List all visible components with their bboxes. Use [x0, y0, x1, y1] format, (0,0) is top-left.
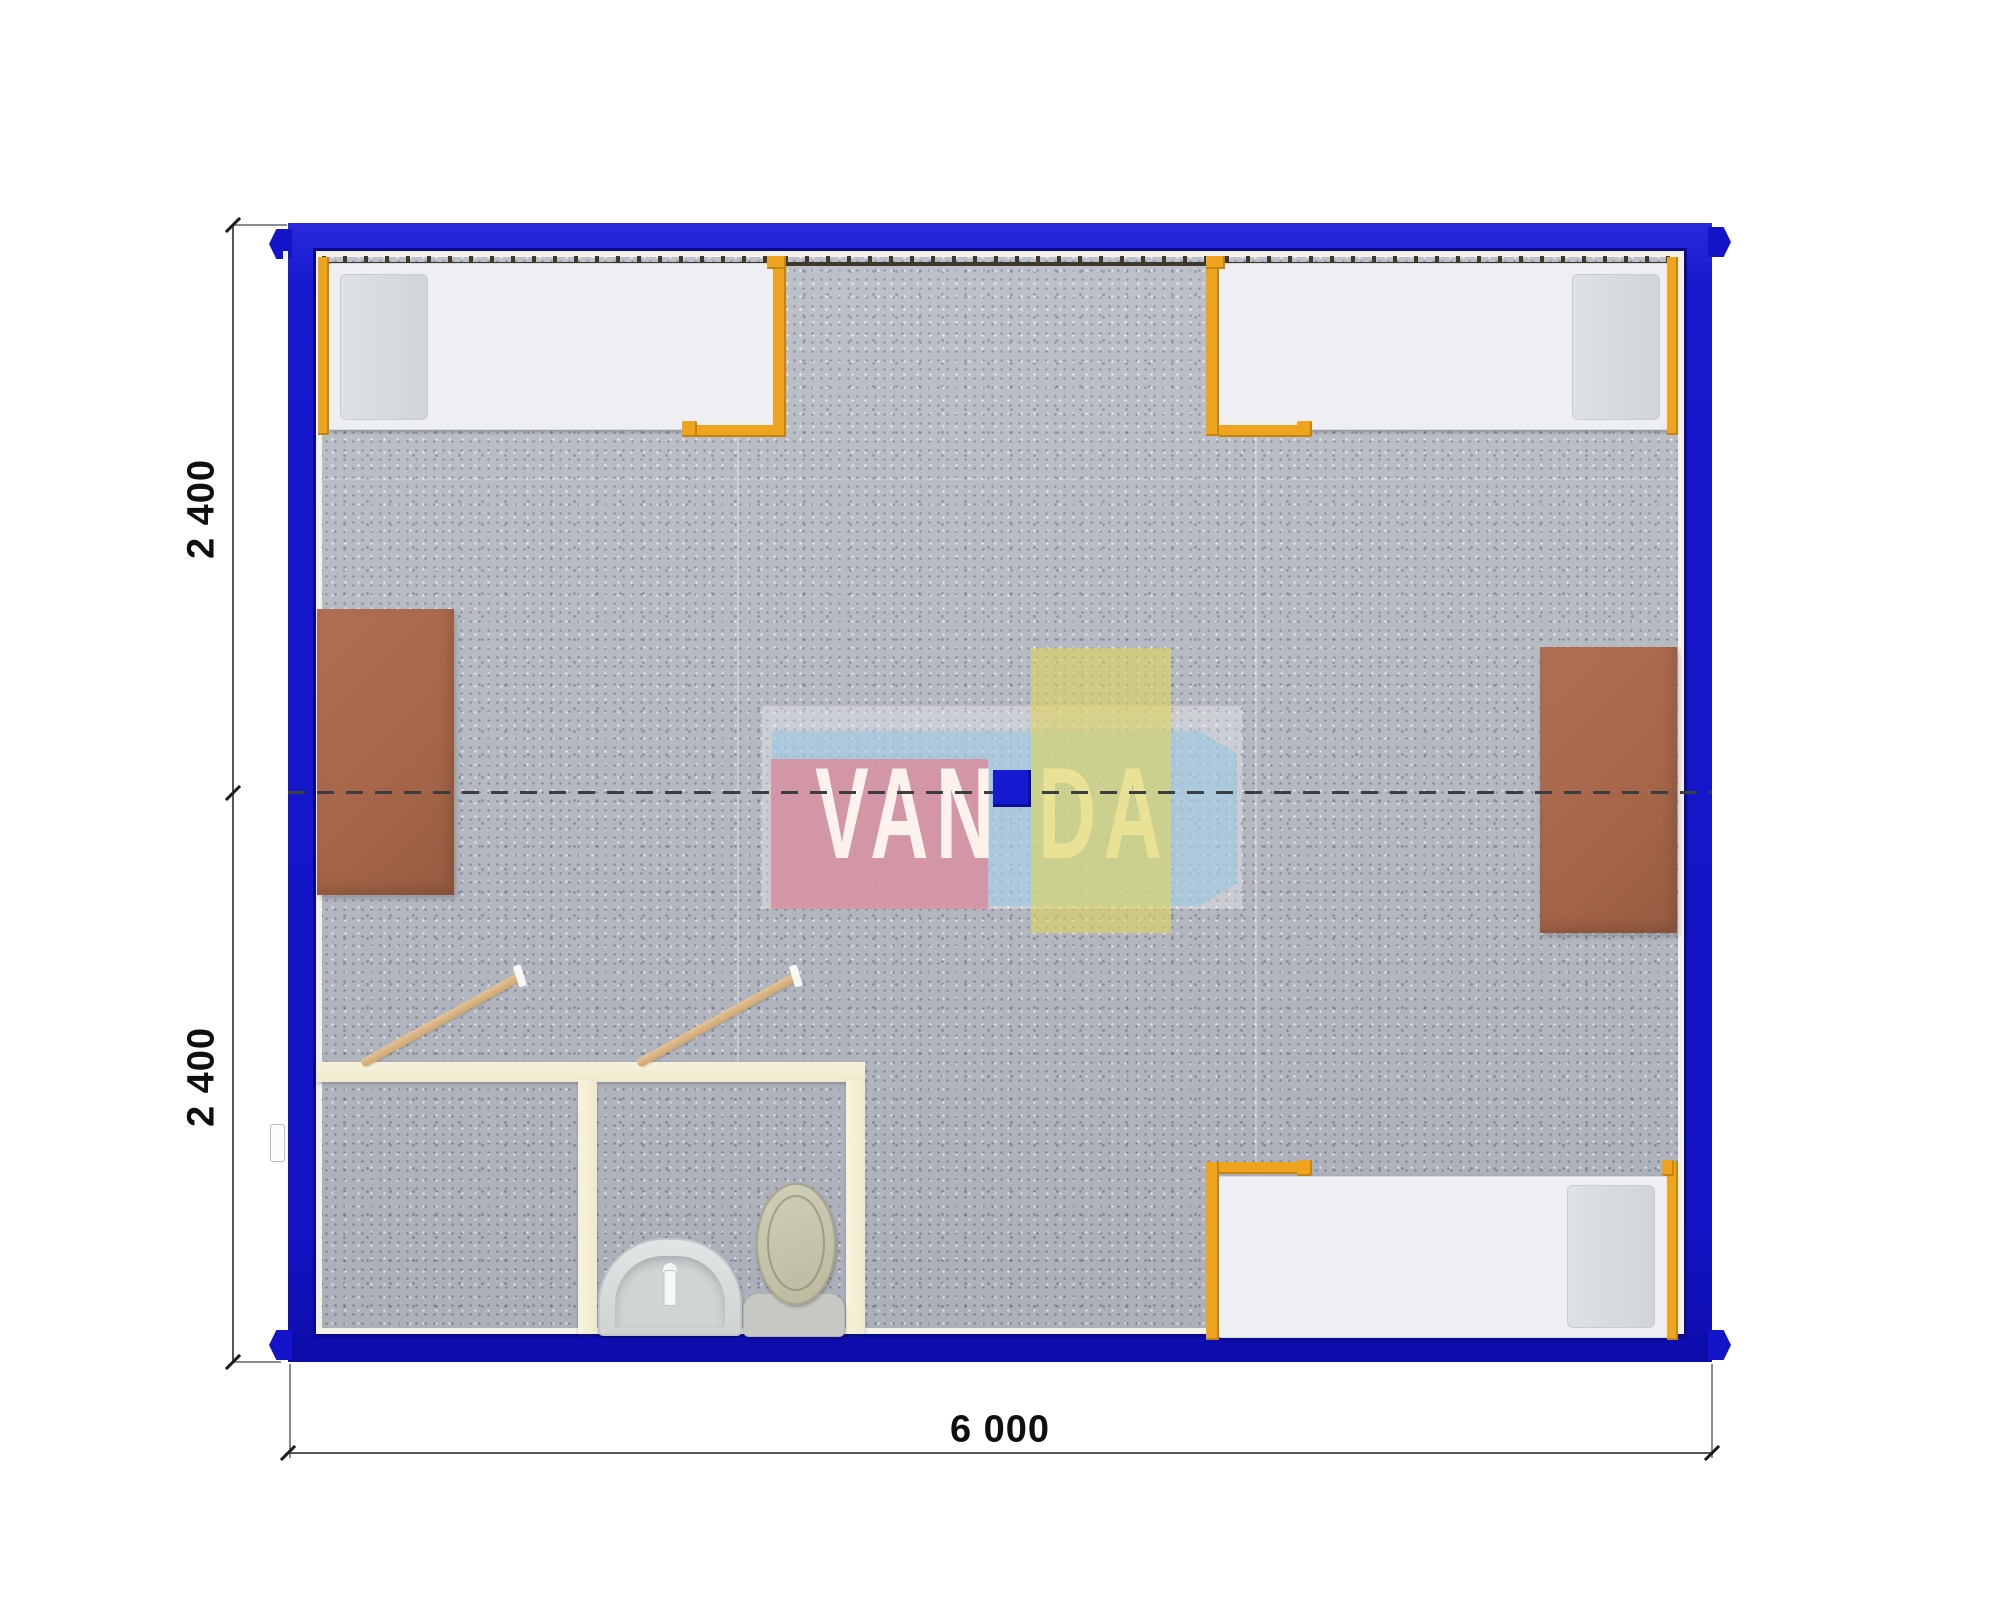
toilet-lid [756, 1183, 836, 1305]
bed-frame-corner [767, 256, 786, 269]
toilet-seat-ring [767, 1195, 825, 1291]
corner-cap-bottom-left-icon [269, 1330, 292, 1360]
desk-left [317, 609, 454, 895]
dimension-label-width: 6 000 [950, 1409, 1050, 1452]
floor-seam [322, 478, 1676, 480]
extension-line-top-left [233, 224, 287, 226]
bed-frame-bar [1219, 425, 1309, 437]
faucet-icon [664, 1270, 677, 1306]
bed-frame-bar [1206, 1162, 1219, 1340]
bed-frame-bar [1667, 1162, 1678, 1340]
bed-bottom-right-pillow [1567, 1185, 1655, 1328]
bed-top-right-pillow [1572, 274, 1660, 420]
extension-line-bottom-left [233, 1361, 281, 1363]
bed-frame-corner [1297, 1160, 1312, 1176]
bed-frame-bar [773, 258, 786, 436]
extension-line-bottom-r [1711, 1364, 1713, 1458]
bed-frame-bar [1206, 258, 1219, 436]
bed-frame-corner [1297, 421, 1312, 437]
bed-frame-bar [318, 257, 329, 435]
bed-frame-bar [1667, 257, 1678, 435]
bed-top-left-pillow [340, 274, 428, 420]
floor-seam [1255, 432, 1257, 1176]
bathroom-wall-top [316, 1062, 865, 1082]
bathroom-wall-divider [578, 1080, 597, 1334]
floor-plan-canvas: 2 400 2 400 6 000 [0, 0, 2000, 1622]
floor-seam [737, 432, 739, 1062]
bathroom-wall-right [846, 1080, 865, 1334]
corner-cap-top-right-icon [1708, 227, 1731, 257]
left-wall-handle [270, 1124, 285, 1162]
dimension-label-height-top: 2 400 [181, 459, 224, 559]
watermark-blue-box [993, 770, 1031, 807]
bed-frame-bar [1219, 1162, 1309, 1174]
bed-frame-bar [684, 425, 786, 437]
dimension-line-bottom [288, 1452, 1712, 1454]
corner-cap-top-left-icon [269, 229, 292, 259]
bed-frame-corner [682, 421, 697, 437]
bed-frame-corner [1662, 1160, 1674, 1176]
desk-right [1540, 647, 1677, 933]
extension-line-bottom-l [289, 1364, 291, 1458]
bed-frame-corner [1206, 256, 1225, 269]
watermark-text-van: VAN [815, 748, 1002, 878]
dimension-label-height-bottom: 2 400 [181, 1027, 224, 1127]
corner-cap-bottom-right-icon [1708, 1330, 1731, 1360]
